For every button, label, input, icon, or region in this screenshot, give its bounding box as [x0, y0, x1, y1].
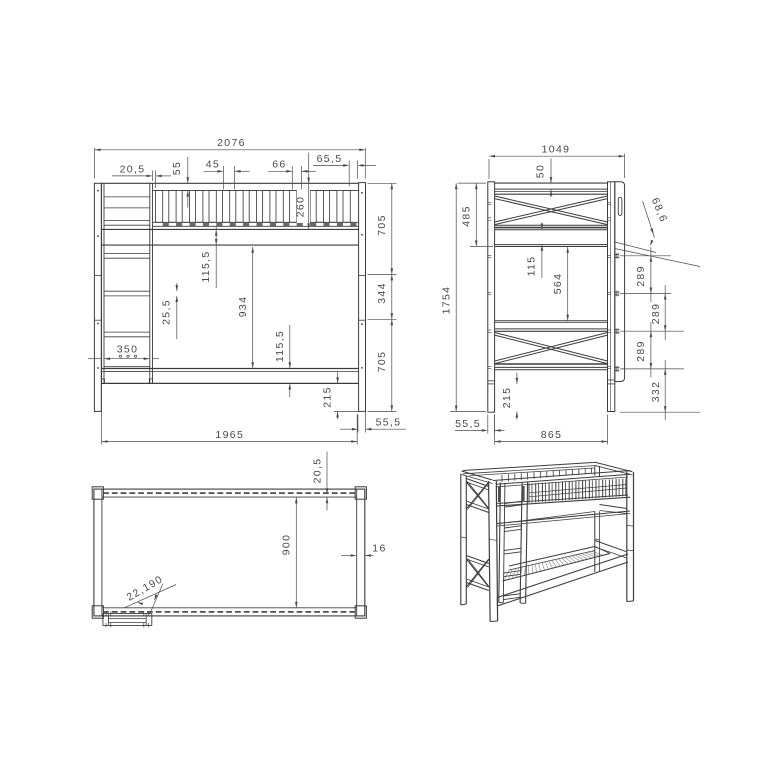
- svg-text:45: 45: [206, 159, 220, 171]
- svg-text:289: 289: [650, 303, 662, 325]
- svg-text:900: 900: [281, 534, 293, 556]
- svg-text:115,5: 115,5: [200, 250, 212, 282]
- svg-text:215: 215: [322, 386, 334, 408]
- svg-text:485: 485: [461, 205, 473, 227]
- svg-text:25,5: 25,5: [160, 299, 172, 325]
- svg-text:115,5: 115,5: [274, 330, 286, 362]
- svg-text:16: 16: [372, 543, 386, 555]
- svg-text:20,5: 20,5: [120, 163, 146, 175]
- svg-text:1965: 1965: [215, 429, 244, 441]
- svg-text:564: 564: [552, 273, 564, 295]
- svg-text:705: 705: [376, 214, 388, 236]
- svg-text:55,5: 55,5: [376, 417, 402, 429]
- svg-text:350: 350: [117, 344, 139, 356]
- svg-text:705: 705: [376, 351, 388, 373]
- svg-text:20,5: 20,5: [311, 458, 323, 484]
- svg-text:934: 934: [237, 296, 249, 318]
- svg-text:1754: 1754: [440, 286, 452, 315]
- svg-text:865: 865: [541, 429, 563, 441]
- svg-text:66: 66: [272, 158, 286, 170]
- svg-text:344: 344: [376, 282, 388, 304]
- svg-text:215: 215: [501, 387, 513, 409]
- svg-text:289: 289: [635, 265, 647, 287]
- svg-text:2076: 2076: [217, 137, 246, 149]
- svg-text:1049: 1049: [542, 144, 571, 156]
- svg-text:332: 332: [650, 381, 662, 403]
- svg-text:55: 55: [171, 161, 183, 175]
- svg-text:50: 50: [535, 164, 547, 178]
- svg-text:289: 289: [635, 340, 647, 362]
- svg-text:260: 260: [294, 196, 306, 218]
- svg-text:55,5: 55,5: [455, 418, 481, 430]
- svg-text:65,5: 65,5: [317, 153, 343, 165]
- svg-text:115: 115: [526, 256, 538, 277]
